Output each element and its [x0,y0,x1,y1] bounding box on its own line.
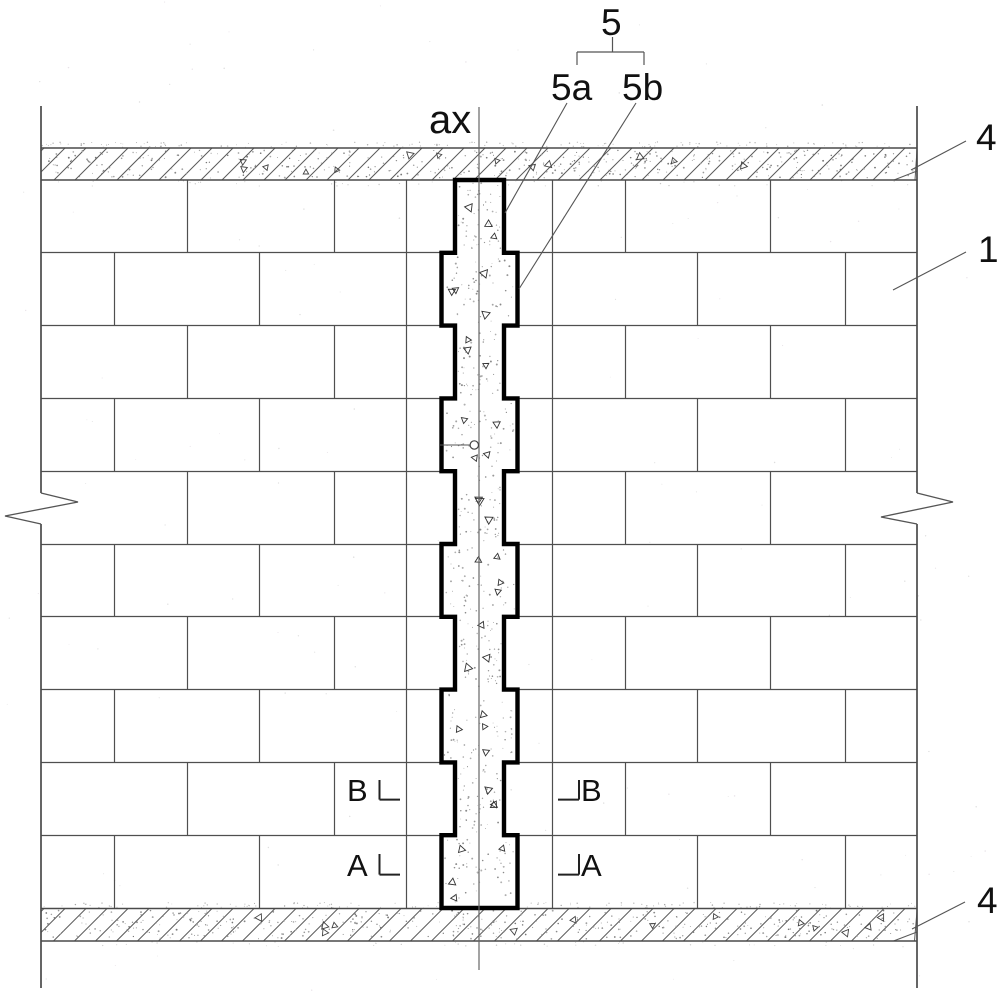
svg-text:4: 4 [977,880,998,921]
svg-text:4: 4 [976,117,997,158]
svg-text:5b: 5b [622,67,663,108]
svg-text:1: 1 [978,229,999,270]
svg-text:5: 5 [601,2,622,43]
svg-text:A: A [581,848,602,883]
svg-text:ax: ax [429,98,471,142]
svg-text:A: A [347,848,368,883]
svg-text:B: B [347,773,368,808]
svg-text:5a: 5a [551,67,593,108]
svg-text:B: B [581,773,602,808]
